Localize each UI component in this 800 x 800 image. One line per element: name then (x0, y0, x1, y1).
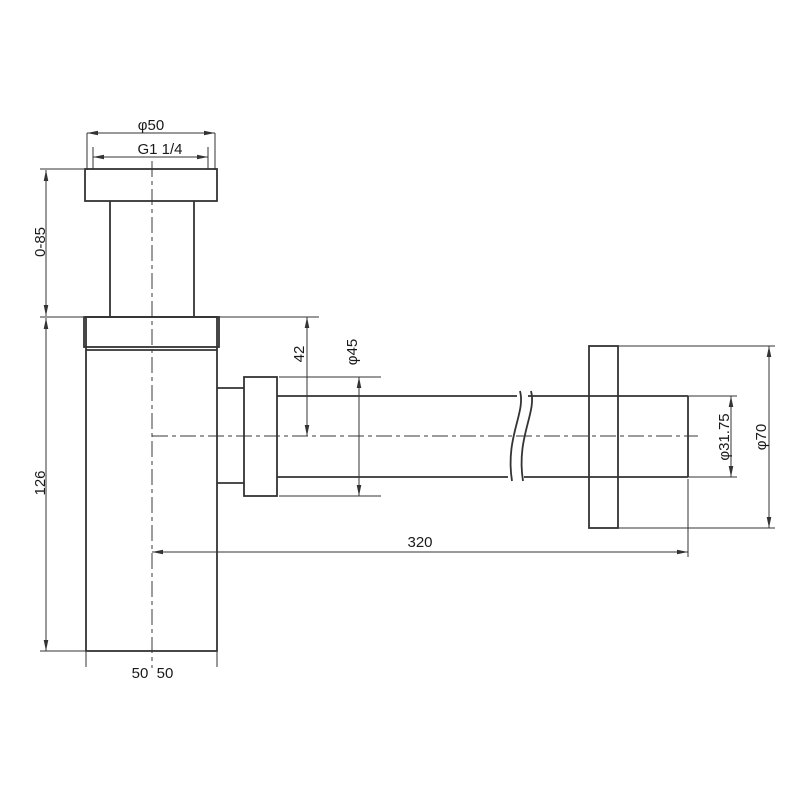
dim-nut-dia-arrow-bottom (357, 485, 362, 496)
dim-adjust-arrow-top (44, 170, 49, 181)
dim-label-outlet-drop: 42 (291, 346, 308, 363)
bottle-trap-drawing: φ50 G1 1/4 0-85 126 42 φ45 320 φ31.75 φ7… (0, 0, 800, 800)
dim-adjust-arrow-bottom (44, 305, 49, 316)
dim-label-thread: G1 1/4 (137, 141, 182, 158)
dim-label-pipe-diameter: φ31.75 (716, 413, 733, 460)
dim-wall-flange-dia-arrow-top (767, 346, 772, 357)
dim-label-nut-diameter: φ45 (344, 339, 361, 365)
dim-nut-dia-arrow-top (357, 377, 362, 388)
dim-outlet-drop-arrow-top (305, 317, 310, 328)
dim-thread-arrow-left (93, 155, 104, 160)
top-flange-outline (85, 169, 217, 201)
drawing-canvas: φ50 G1 1/4 0-85 126 42 φ45 320 φ31.75 φ7… (0, 0, 800, 800)
wall-flange-outline (589, 346, 618, 528)
dim-outlet-length-arrow-right (677, 550, 688, 555)
dim-thread-arrow-right (197, 155, 208, 160)
dim-label-adjustable-height: 0-85 (32, 227, 49, 257)
dim-body-height-arrow-bottom (44, 640, 49, 651)
dim-label-wall-flange-diameter: φ70 (753, 424, 770, 450)
dim-wall-flange-dia-arrow-bottom (767, 517, 772, 528)
dim-flange-dia-arrow-left (87, 131, 98, 136)
dim-label-outlet-length: 320 (407, 534, 432, 551)
dim-body-height-arrow-top (44, 318, 49, 329)
dim-outlet-drop-arrow-bottom (305, 425, 310, 436)
dim-label-half-width-right: 50 (157, 665, 174, 682)
dim-label-flange-diameter: φ50 (138, 117, 164, 134)
dim-outlet-length-arrow-left (152, 550, 163, 555)
dim-pipe-dia-arrow-top (729, 396, 734, 407)
dim-label-body-height: 126 (32, 470, 49, 495)
dim-pipe-dia-arrow-bottom (729, 466, 734, 477)
dim-label-half-width-left: 50 (132, 665, 149, 682)
dim-flange-dia-arrow-right (204, 131, 215, 136)
